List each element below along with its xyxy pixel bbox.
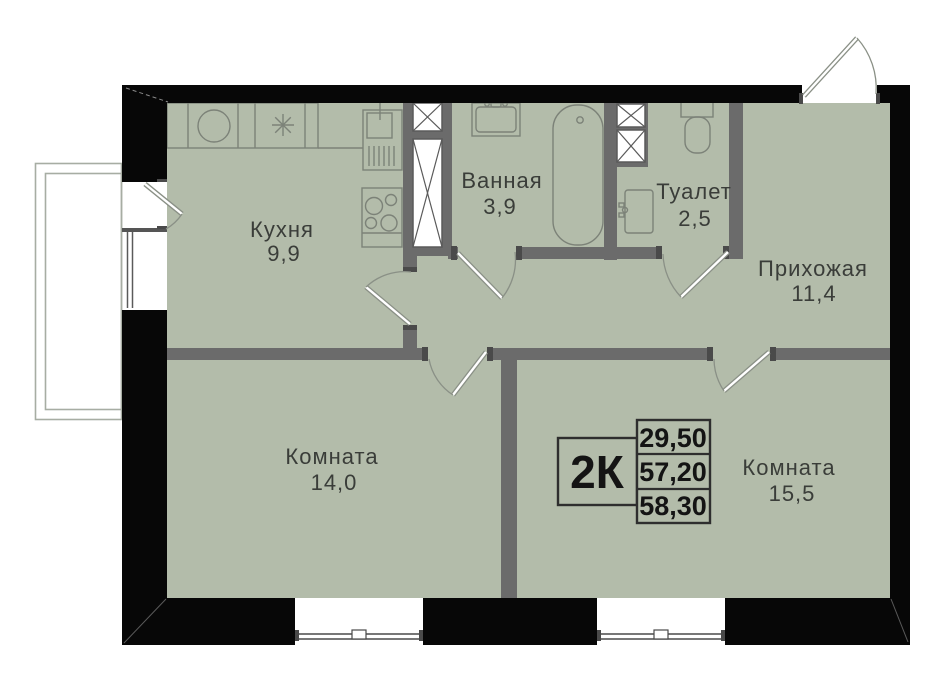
wall-right: [890, 85, 910, 645]
room-right-label: Комната: [742, 455, 835, 480]
hallway-label: Прихожая: [758, 256, 868, 281]
wall-toilet-south: [604, 247, 662, 259]
bathroom-label: Ванная: [461, 168, 542, 193]
hallway-area: 11,4: [791, 281, 836, 306]
toilet-vent-shaft: [604, 103, 648, 167]
window-marker: [654, 630, 668, 639]
wall-bottom-center: [423, 598, 597, 645]
floor-plan: Кухня 9,9 Ванная 3,9 Туалет 2,5 Прихожая…: [0, 0, 950, 693]
window-marker: [352, 630, 366, 639]
room-right-area: 15,5: [769, 481, 816, 506]
toilet-label: Туалет: [656, 179, 732, 204]
wall-left-lower: [122, 310, 167, 645]
bathroom-area: 3,9: [483, 194, 517, 219]
wall-bathroom-south-right: [516, 247, 604, 259]
kitchen-area: 9,9: [267, 241, 301, 266]
wall-bottom-left: [167, 598, 295, 645]
wall-bottom-right: [725, 598, 910, 645]
kitchen-vent-shaft: [403, 103, 452, 256]
kitchen-label: Кухня: [250, 217, 314, 242]
room-left-area: 14,0: [311, 470, 358, 495]
hob-asterisk-icon: [272, 114, 294, 136]
balcony-floor: [35, 163, 122, 420]
toilet-area: 2,5: [678, 206, 712, 231]
wall-mid-left: [167, 348, 428, 360]
wall-mid-center: [487, 348, 713, 360]
legend-area-total: 57,20: [639, 457, 707, 487]
room-left-label: Комната: [285, 444, 378, 469]
legend-area-full: 58,30: [639, 491, 707, 521]
legend-area-living: 29,50: [639, 423, 707, 453]
wall-rooms-divider: [501, 348, 517, 598]
wall-mid-right: [770, 348, 890, 360]
wall-top: [122, 85, 802, 103]
legend-type-label: 2К: [570, 446, 625, 498]
balcony: [35, 163, 122, 420]
